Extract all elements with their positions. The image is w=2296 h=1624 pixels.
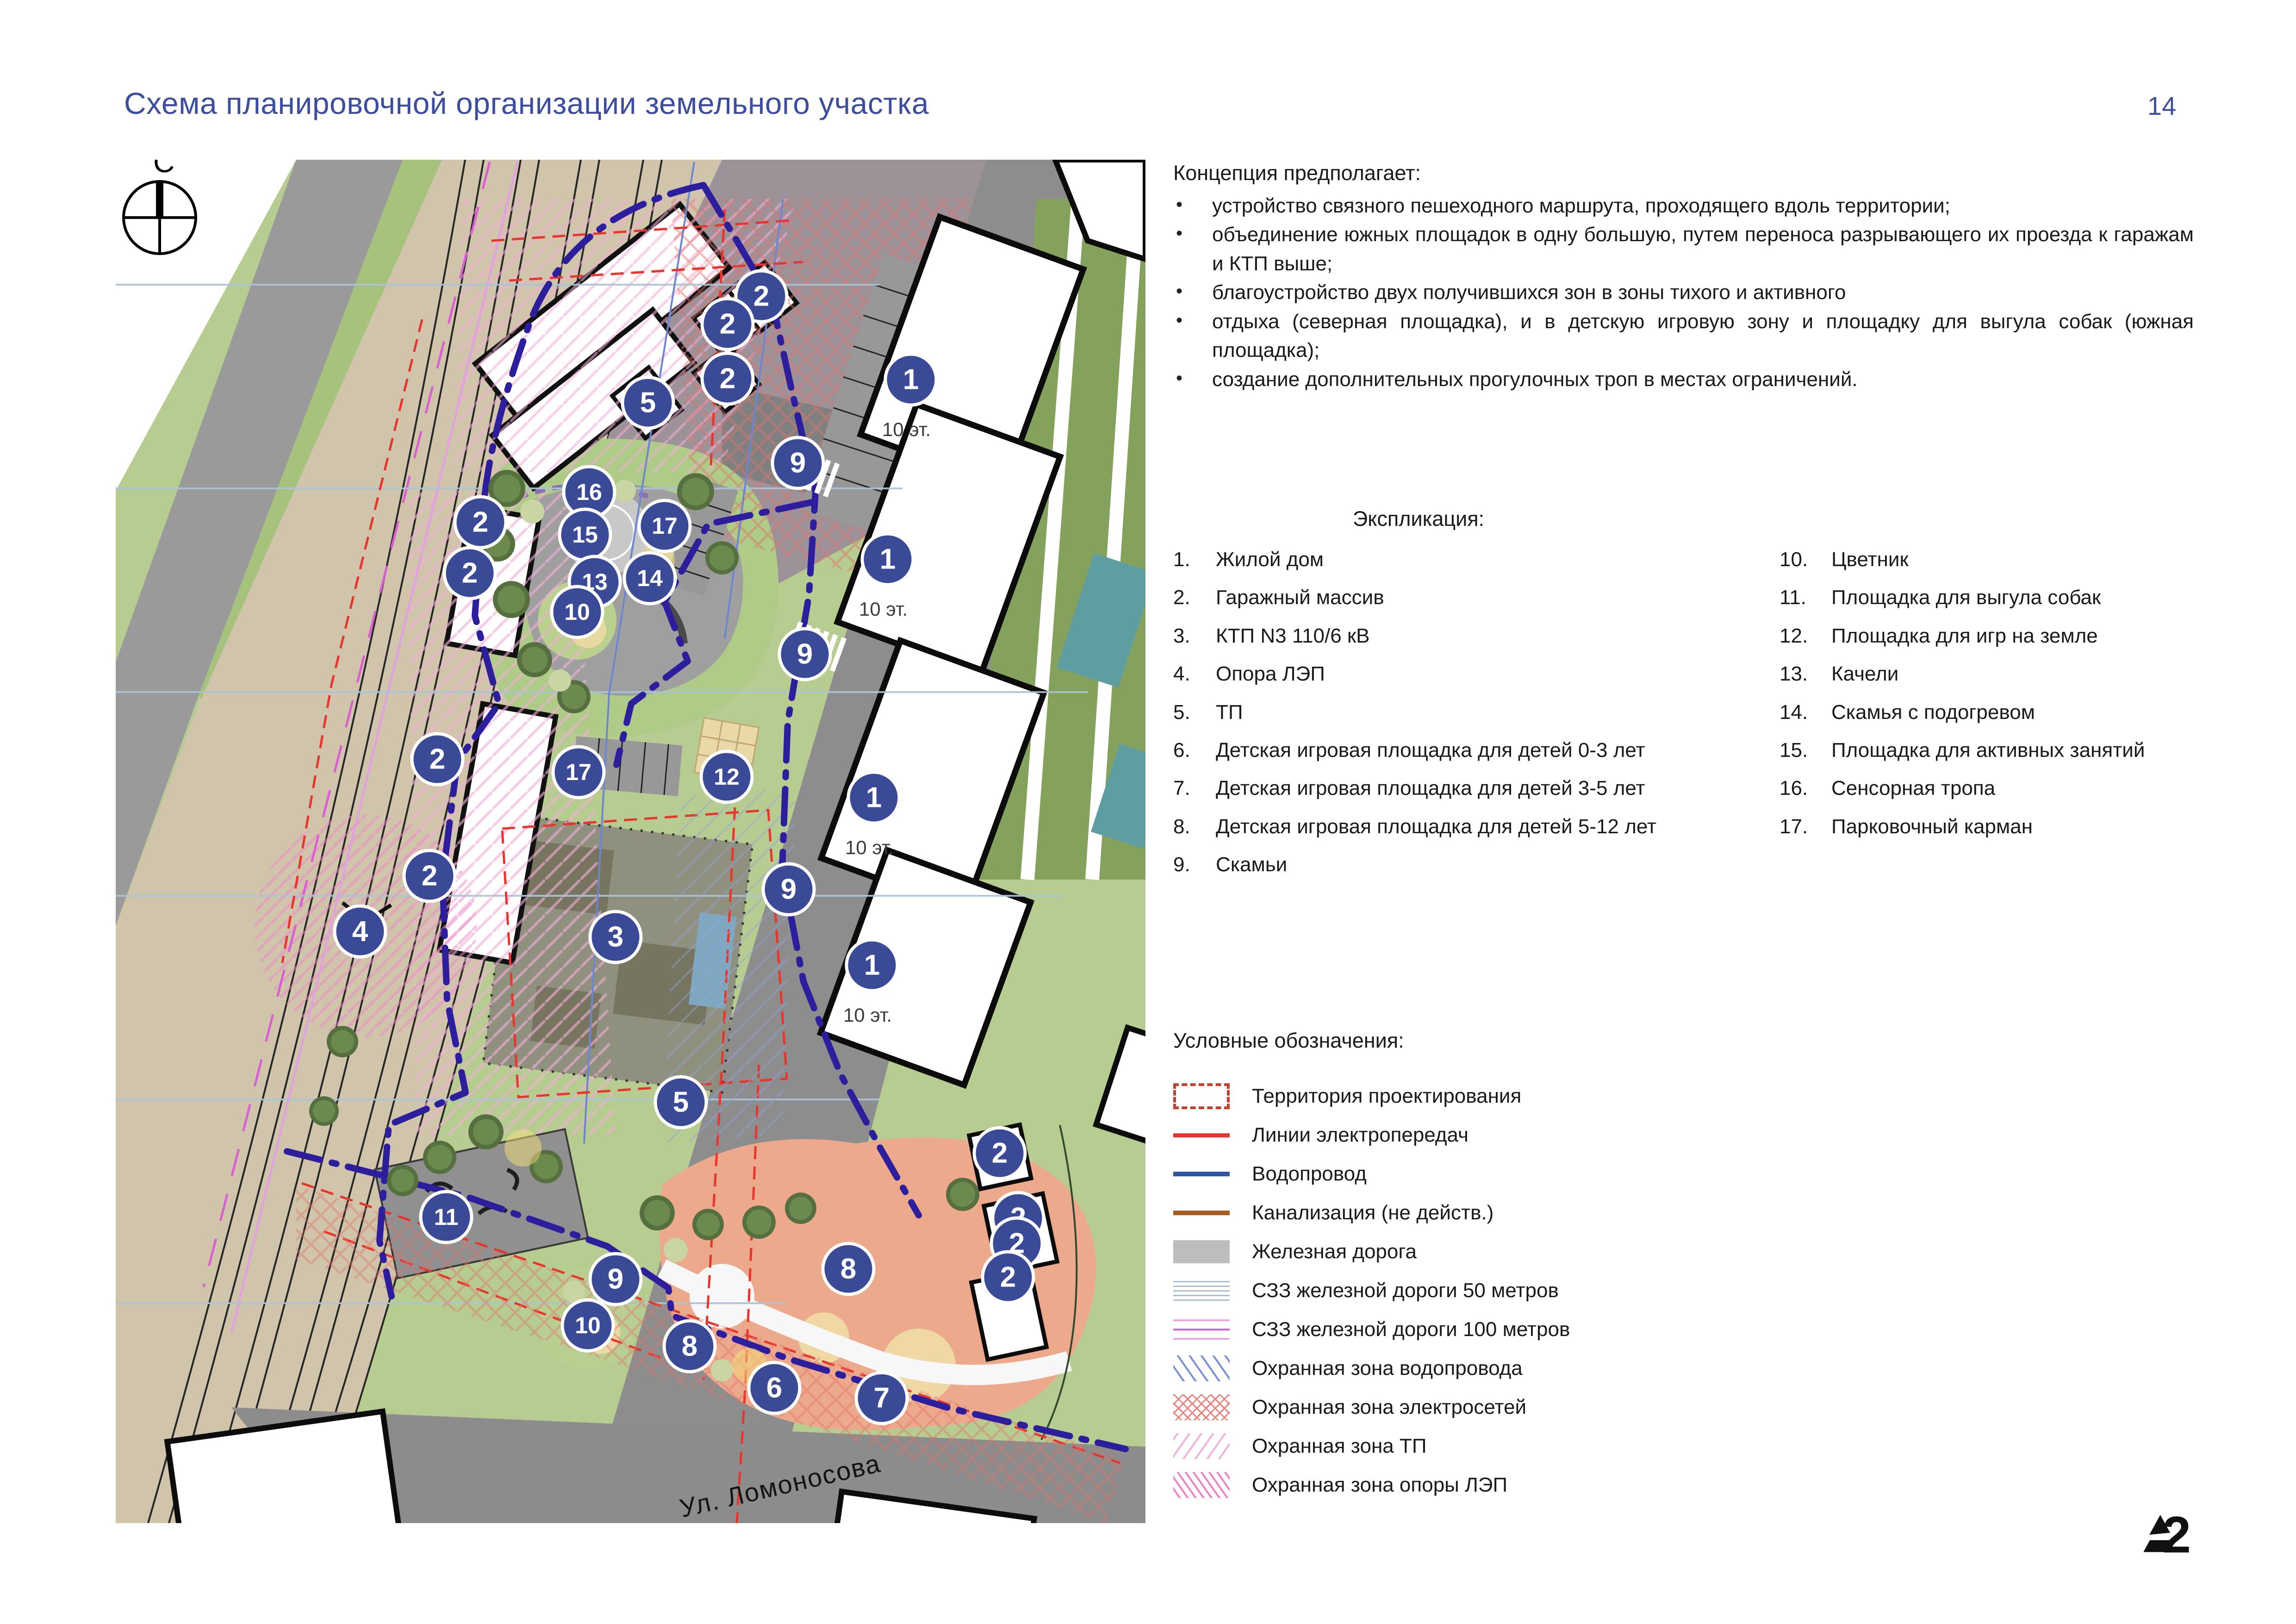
map-marker-5: 5 — [622, 377, 673, 428]
svg-text:10: 10 — [564, 599, 590, 625]
svg-text:2: 2 — [462, 557, 478, 589]
svg-text:1: 1 — [864, 949, 880, 981]
explication-item-number: 14. — [1780, 701, 1831, 724]
svg-text:12: 12 — [714, 764, 740, 790]
legend-swatch-szz100-icon — [1173, 1317, 1230, 1343]
svg-text:1: 1 — [880, 543, 896, 575]
svg-text:11: 11 — [434, 1204, 459, 1230]
legend-swatch-szz50-icon — [1173, 1278, 1230, 1304]
svg-text:5: 5 — [673, 1087, 689, 1118]
map-marker-10: 10 — [552, 587, 603, 637]
svg-text:17: 17 — [652, 513, 678, 539]
legend-item-label: Железная дорога — [1252, 1240, 1417, 1263]
explication-item-label: Опора ЛЭП — [1216, 663, 1325, 685]
explication-item-label: Скамьи — [1216, 854, 1287, 876]
legend-swatch-zone-water-icon — [1173, 1355, 1230, 1381]
legend-item: Охранная зона электросетей — [1173, 1388, 2293, 1427]
explication-item-number: 8. — [1173, 816, 1216, 838]
explication-item: 16.Сенсорная тропа — [1780, 777, 2296, 800]
svg-text:3: 3 — [608, 921, 623, 953]
explication-item: 6.Детская игровая площадка для детей 0-3… — [1173, 739, 1784, 762]
explication-item: 8.Детская игровая площадка для детей 5-1… — [1173, 816, 1784, 838]
building-floors-label: 10 эт. — [843, 1004, 892, 1026]
concept-bullet: •устройство связного пешеходного маршрут… — [1173, 192, 2194, 220]
svg-text:2: 2 — [473, 506, 488, 538]
map-marker-1: 110 эт. — [882, 354, 936, 440]
bullet-dot-icon: • — [1173, 220, 1212, 247]
slide-page: { "page": { "title": "Схема планировочно… — [0, 0, 2296, 1624]
explication-item-label: ТП — [1216, 701, 1243, 724]
explication-item-number: 12. — [1780, 625, 1831, 647]
concept-block: Концепция предполагает: •устройство связ… — [1173, 161, 2194, 394]
explication-item-label: Сенсорная тропа — [1831, 777, 1995, 800]
map-marker-1: 110 эт. — [843, 940, 897, 1026]
map-marker-2: 2 — [412, 734, 463, 785]
explication-item-number: 11. — [1780, 587, 1831, 609]
map-marker-17: 17 — [553, 747, 604, 798]
map-marker-12: 12 — [701, 751, 752, 802]
map-marker-5: 5 — [655, 1077, 706, 1128]
legend-swatch-zone-lep-icon — [1173, 1472, 1230, 1498]
explication-item-label: Цветник — [1831, 549, 1909, 571]
svg-text:5: 5 — [640, 387, 656, 419]
legend-item-label: Территория проектирования — [1252, 1085, 1521, 1108]
map-marker-9: 9 — [772, 437, 823, 488]
legend-item-label: Водопровод — [1252, 1162, 1367, 1186]
map-marker-17: 17 — [639, 500, 690, 551]
explication-item-label: Площадка для активных занятий — [1831, 739, 2145, 762]
explication-item: 4.Опора ЛЭП — [1173, 663, 1784, 685]
map-marker-1: 110 эт. — [859, 534, 913, 620]
legend-swatch-power-icon — [1173, 1122, 1230, 1148]
svg-text:9: 9 — [608, 1263, 623, 1295]
page-title: Схема планировочной организации земельно… — [124, 86, 929, 121]
explication-item-number: 6. — [1173, 739, 1216, 762]
concept-bullet: •отдыха (северная площадка), и в детскую… — [1173, 307, 2194, 365]
legend-item-label: СЗЗ железной дороги 50 метров — [1252, 1279, 1559, 1302]
legend-swatch-water-icon — [1173, 1161, 1230, 1187]
svg-text:8: 8 — [682, 1330, 697, 1362]
svg-text:2: 2 — [1000, 1262, 1016, 1293]
svg-text:2: 2 — [720, 363, 735, 395]
concept-bullet-text: устройство связного пешеходного маршрута… — [1212, 192, 2194, 220]
explication-item-label: Детская игровая площадка для детей 0-3 л… — [1216, 739, 1645, 762]
explication-item: 5.ТП — [1173, 701, 1784, 724]
bullet-dot-icon: • — [1173, 307, 1212, 334]
building-floors-label: 10 эт. — [882, 418, 931, 440]
explication-item: 2.Гаражный массив — [1173, 587, 1784, 609]
a2-logo-graphic: 2 — [2134, 1504, 2204, 1564]
map-marker-14: 14 — [624, 553, 675, 604]
legend-item-label: СЗЗ железной дороги 100 метров — [1252, 1318, 1570, 1341]
svg-text:2: 2 — [429, 743, 445, 775]
concept-bullet: •объединение южных площадок в одну больш… — [1173, 220, 2194, 278]
explication-item-label: Жилой дом — [1216, 549, 1324, 571]
compass-north-letter: С — [153, 160, 174, 179]
explication-item-label: Площадка для выгула собак — [1831, 587, 2101, 609]
explication-item-number: 7. — [1173, 777, 1216, 800]
explication-list-right: 10.Цветник11.Площадка для выгула собак12… — [1780, 549, 2296, 854]
legend-swatch-territory-icon — [1173, 1083, 1230, 1109]
svg-text:2: 2 — [422, 860, 437, 892]
legend-list: Территория проектированияЛинии электропе… — [1173, 1077, 2293, 1505]
map-marker-2: 2 — [974, 1128, 1025, 1179]
map-marker-9: 9 — [763, 864, 814, 915]
concept-bullet: •создание дополнительных прогулочных тро… — [1173, 365, 2194, 394]
explication-item-label: Детская игровая площадка для детей 5-12 … — [1216, 816, 1656, 838]
explication-item-number: 3. — [1173, 625, 1216, 647]
legend-item-label: Охранная зона электросетей — [1252, 1396, 1526, 1419]
explication-item: 17.Парковочный карман — [1780, 816, 2296, 838]
explication-item-number: 1. — [1173, 549, 1216, 571]
legend-swatch-rail-icon — [1173, 1240, 1230, 1263]
map-marker-8: 8 — [823, 1243, 874, 1294]
a2-logo: 2 — [2134, 1504, 2204, 1564]
svg-text:9: 9 — [781, 874, 796, 906]
svg-text:1: 1 — [903, 364, 919, 396]
map-marker-2: 2 — [983, 1252, 1033, 1303]
explication-list-left: 1.Жилой дом2.Гаражный массив3.КТП N3 110… — [1173, 549, 1784, 892]
legend-item: СЗЗ железной дороги 100 метров — [1173, 1310, 2293, 1349]
explication-item-label: Детская игровая площадка для детей 3-5 л… — [1216, 777, 1645, 800]
explication-item: 1.Жилой дом — [1173, 549, 1784, 571]
legend-item: Охранная зона ТП — [1173, 1427, 2293, 1466]
svg-text:4: 4 — [352, 916, 368, 948]
explication-item-number: 16. — [1780, 777, 1831, 800]
explication-item: 12.Площадка для игр на земле — [1780, 625, 2296, 647]
explication-item: 13.Качели — [1780, 663, 2296, 685]
svg-text:6: 6 — [766, 1372, 782, 1404]
explication-item-number: 17. — [1780, 816, 1831, 838]
svg-text:1: 1 — [866, 782, 882, 814]
legend-heading: Условные обозначения: — [1173, 1029, 1404, 1053]
map-marker-2: 2 — [404, 850, 455, 901]
map-marker-2: 2 — [455, 497, 506, 548]
map-marker-8: 8 — [664, 1321, 715, 1372]
explication-item: 14.Скамья с подогревом — [1780, 701, 2296, 724]
svg-text:17: 17 — [566, 759, 591, 785]
legend-item-label: Охранная зона опоры ЛЭП — [1252, 1474, 1507, 1497]
bullet-dot-icon: • — [1173, 365, 1212, 392]
svg-text:2: 2 — [720, 308, 735, 340]
legend-item: Охранная зона опоры ЛЭП — [1173, 1466, 2293, 1505]
site-plan-map: Ул. Ломоносова С 2225110 эт.110 эт.110 э… — [116, 160, 1145, 1523]
map-marker-2: 2 — [702, 353, 753, 404]
map-marker-6: 6 — [749, 1362, 800, 1413]
map-marker-15: 15 — [560, 509, 610, 560]
svg-text:16: 16 — [576, 479, 602, 505]
explication-item-label: Гаражный массив — [1216, 587, 1384, 609]
map-marker-1: 110 эт. — [845, 772, 899, 858]
svg-text:14: 14 — [637, 565, 663, 591]
explication-item-label: КТП N3 110/6 кВ — [1216, 625, 1370, 647]
explication-item-label: Качели — [1831, 663, 1898, 685]
building-floors-label: 10 эт. — [859, 598, 908, 620]
explication-heading: Экспликация: — [1171, 507, 1666, 531]
explication-item-number: 5. — [1173, 701, 1216, 724]
concept-bullet: •благоустройство двух получившихся зон в… — [1173, 278, 2194, 307]
explication-item: 3.КТП N3 110/6 кВ — [1173, 625, 1784, 647]
legend-item: Охранная зона водопровода — [1173, 1349, 2293, 1388]
concept-heading: Концепция предполагает: — [1173, 161, 2194, 185]
svg-text:2: 2 — [992, 1137, 1008, 1169]
map-marker-10: 10 — [562, 1300, 613, 1351]
legend-item: Территория проектирования — [1173, 1077, 2293, 1116]
concept-bullet-text: объединение южных площадок в одну большу… — [1212, 220, 2194, 278]
page-number: 14 — [2147, 91, 2263, 121]
map-marker-2: 2 — [444, 548, 495, 599]
explication-item-label: Парковочный карман — [1831, 816, 2033, 838]
map-marker-7: 7 — [856, 1373, 907, 1424]
explication-item-number: 13. — [1780, 663, 1831, 685]
concept-bullet-text: создание дополнительных прогулочных троп… — [1212, 365, 2194, 394]
explication-item-number: 10. — [1780, 549, 1831, 571]
explication-item: 7.Детская игровая площадка для детей 3-5… — [1173, 777, 1784, 800]
explication-item-number: 9. — [1173, 854, 1216, 876]
legend-item-label: Охранная зона водопровода — [1252, 1357, 1523, 1380]
concept-bullet-list: •устройство связного пешеходного маршрут… — [1173, 192, 2194, 394]
svg-text:7: 7 — [874, 1382, 890, 1414]
svg-text:9: 9 — [790, 447, 806, 479]
explication-item-label: Скамья с подогревом — [1831, 701, 2035, 724]
explication-item: 10.Цветник — [1780, 549, 2296, 571]
legend-item: Железная дорога — [1173, 1232, 2293, 1271]
explication-item: 15.Площадка для активных занятий — [1780, 739, 2296, 762]
bullet-dot-icon: • — [1173, 192, 1212, 218]
legend-item: Канализация (не действ.) — [1173, 1193, 2293, 1232]
svg-text:9: 9 — [797, 638, 813, 670]
svg-text:2: 2 — [753, 281, 769, 312]
logo-digit: 2 — [2162, 1506, 2191, 1564]
concept-bullet-text: отдыха (северная площадка), и в детскую … — [1212, 307, 2194, 365]
explication-item-label: Площадка для игр на земле — [1831, 625, 2098, 647]
explication-item-number: 4. — [1173, 663, 1216, 685]
explication-item: 11.Площадка для выгула собак — [1780, 587, 2296, 609]
map-marker-4: 4 — [335, 906, 386, 957]
map-marker-2: 2 — [702, 299, 753, 350]
map-marker-3: 3 — [590, 912, 641, 962]
concept-bullet-text: благоустройство двух получившихся зон в … — [1212, 278, 2194, 307]
map-marker-9: 9 — [779, 629, 830, 680]
explication-item-number: 2. — [1173, 587, 1216, 609]
legend-item: Линии электропередач — [1173, 1116, 2293, 1155]
svg-text:15: 15 — [572, 522, 598, 548]
legend-item-label: Охранная зона ТП — [1252, 1435, 1426, 1458]
explication-item-number: 15. — [1780, 739, 1831, 762]
legend-swatch-zone-power-icon — [1173, 1394, 1230, 1420]
legend-item-label: Канализация (не действ.) — [1252, 1201, 1493, 1224]
legend-item: СЗЗ железной дороги 50 метров — [1173, 1271, 2293, 1310]
bullet-dot-icon: • — [1173, 278, 1212, 305]
building-floors-label: 10 эт. — [845, 837, 894, 858]
legend-swatch-sewer-icon — [1173, 1200, 1230, 1226]
legend-item: Водопровод — [1173, 1155, 2293, 1193]
svg-text:8: 8 — [840, 1253, 856, 1285]
legend-swatch-zone-tp-icon — [1173, 1433, 1230, 1459]
explication-item: 9.Скамьи — [1173, 854, 1784, 876]
map-marker-9: 9 — [590, 1254, 641, 1305]
svg-text:10: 10 — [575, 1312, 601, 1338]
map-marker-11: 11 — [421, 1192, 472, 1243]
legend-item-label: Линии электропередач — [1252, 1124, 1468, 1147]
